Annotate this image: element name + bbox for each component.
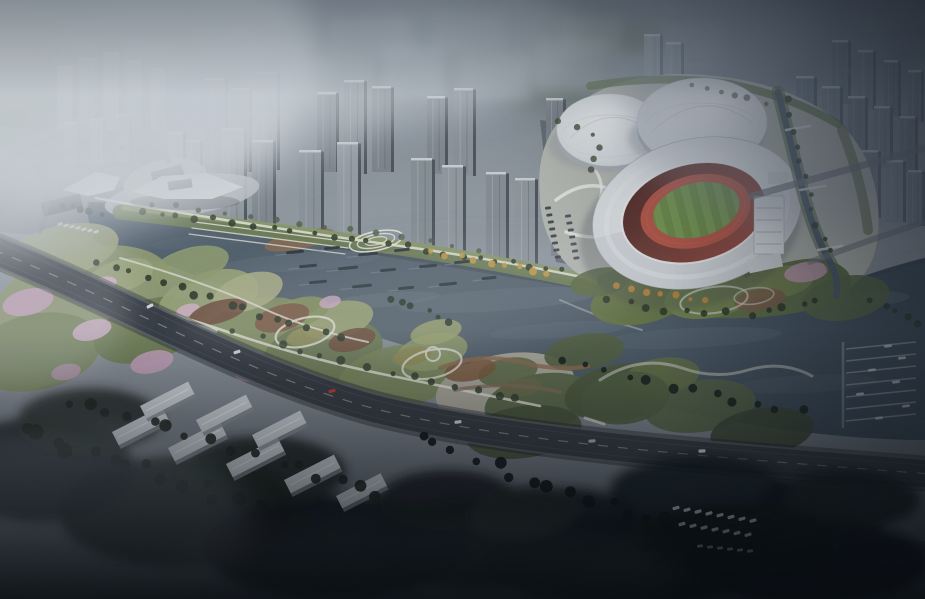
aerial-masterplan-render: [0, 0, 925, 599]
render-canvas: [0, 0, 925, 599]
grain-overlay: [0, 0, 925, 599]
